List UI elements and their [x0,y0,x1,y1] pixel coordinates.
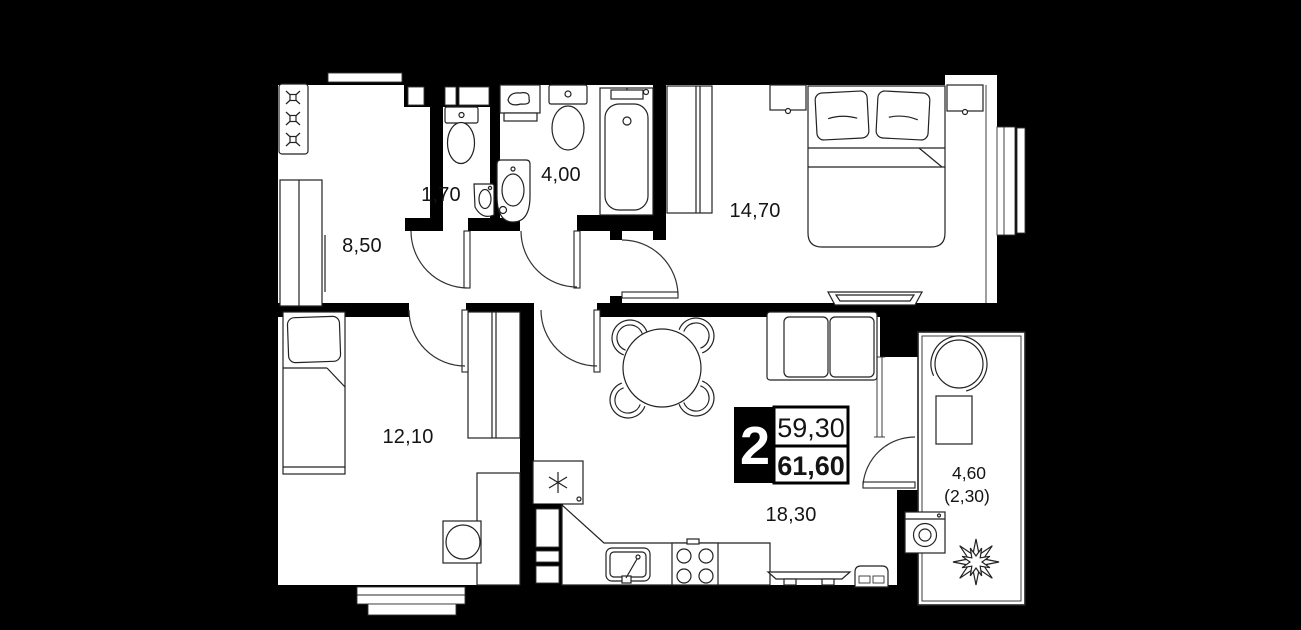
second-room-area-label: 12,10 [382,426,433,448]
corridor-floor [430,231,610,303]
wardrobe-icon [468,312,520,438]
badge-area-top: 59,30 [777,413,845,443]
badge-room-count: 2 [740,416,770,476]
kitchen-living-area-label: 18,30 [765,504,816,526]
washing-machine-icon [905,512,945,553]
sofa-icon [767,312,877,380]
radiator-icon [828,292,922,305]
media-box-icon [855,566,888,587]
bedroom-door-gap [610,240,622,296]
hallway-area-label: 8,50 [342,235,382,257]
single-bed-icon [283,312,345,474]
floor-plan-canvas: 8,50 1,70 4,00 14,70 12,10 18,30 4,60 (2… [0,0,1301,630]
fridge-icon [533,461,583,504]
niche-shelf-icon [445,87,456,105]
window-icon [357,587,465,615]
balcony-opening [880,357,918,490]
pedestal-sink-icon [497,160,530,222]
entry-door-icon [328,73,402,82]
bathtub-icon [600,88,653,215]
wardrobe-icon [667,86,712,213]
niche-shelf-icon [459,87,489,105]
living-doorway [534,303,597,317]
dining-table-icon [623,329,701,407]
wc-area-label: 1,70 [421,184,461,206]
kitchen-sink-icon [606,548,650,583]
stove-icon [672,539,718,585]
double-bed-icon [808,86,945,247]
bedroom-area-label: 14,70 [729,200,780,222]
wardrobe-icon [280,180,325,306]
wc-doorway [443,218,468,231]
niche-shelf-icon [408,87,424,105]
nightstand-icon [770,85,806,114]
balcony-area-reduced-label: (2,30) [944,486,990,506]
nightstand-icon [947,85,983,115]
summary-badge: 2 59,30 61,60 [734,407,848,483]
duct-shaft-icon [532,504,563,585]
side-table-icon [936,396,972,444]
floor-plan: 8,50 1,70 4,00 14,70 12,10 18,30 4,60 (2… [0,0,1301,630]
bathroom-doorway [520,218,577,231]
badge-area-bottom: 61,60 [777,451,845,481]
chair-icon [443,521,481,563]
plant-icon [953,539,999,585]
bathroom-area-label: 4,00 [541,164,581,186]
vanity-counter-icon [500,85,540,121]
desk-icon [477,473,520,585]
toilet-icon [549,85,587,150]
second-room-doorway [409,303,466,317]
balcony-area-label: 4,60 [952,463,986,483]
coat-hooks-icon [279,84,308,154]
